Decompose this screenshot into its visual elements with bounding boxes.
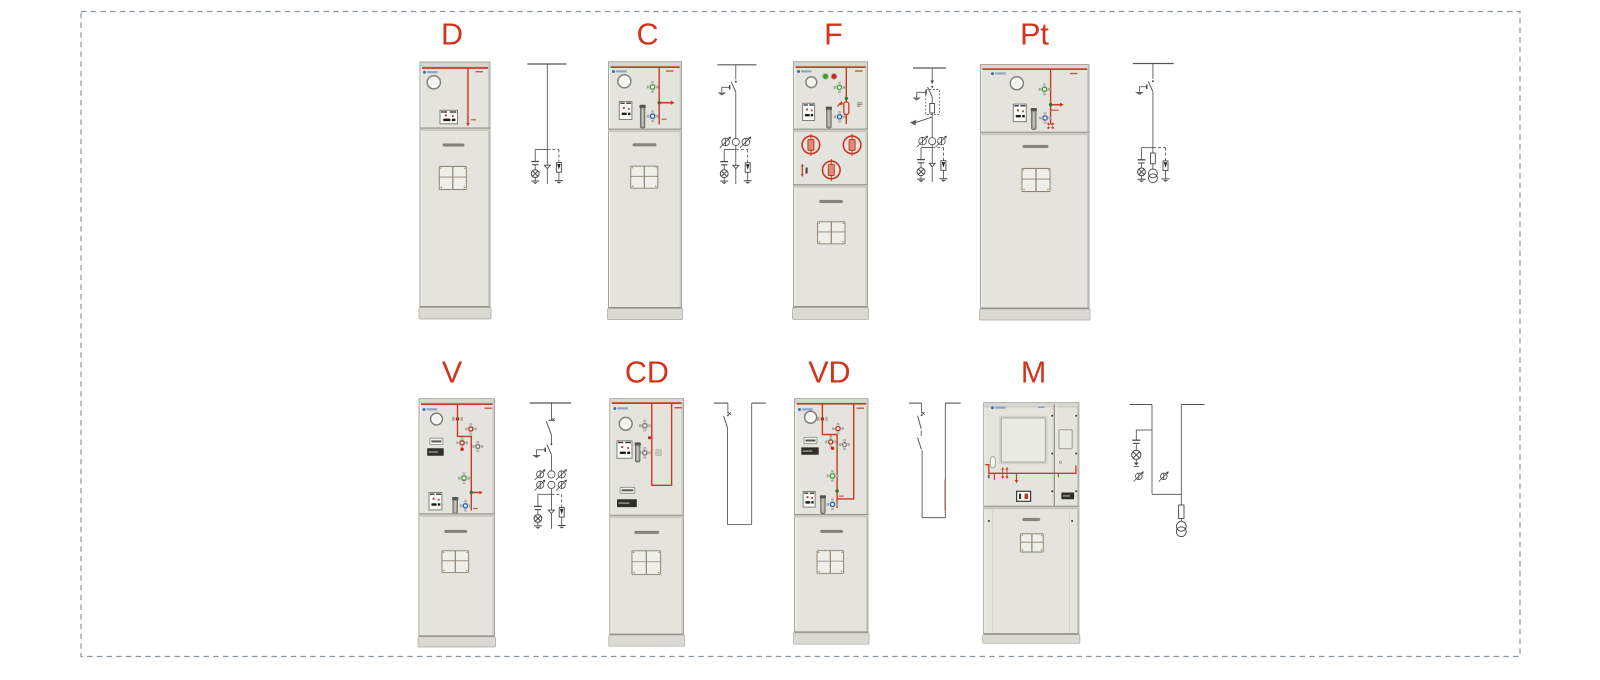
svg-text:CD: CD (625, 356, 669, 390)
svg-text:M: M (1021, 356, 1046, 390)
svg-text:Pt: Pt (1020, 18, 1049, 52)
svg-text:VD: VD (808, 356, 850, 390)
svg-text:C: C (636, 18, 658, 52)
svg-text:D: D (441, 18, 463, 52)
svg-text:V: V (442, 356, 463, 390)
svg-text:F: F (824, 18, 843, 52)
